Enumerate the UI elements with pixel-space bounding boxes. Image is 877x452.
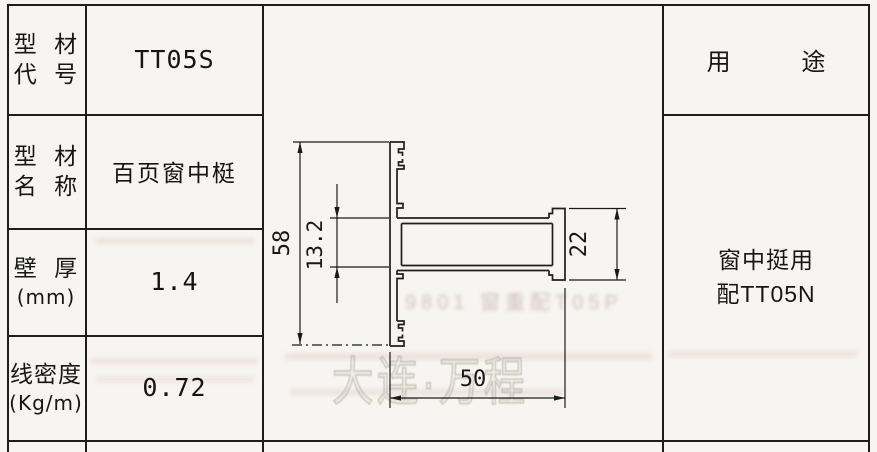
dim-text-58: 58	[270, 230, 295, 257]
label-cell-profile-name: 型 材 名 称	[9, 116, 83, 226]
arrowhead	[554, 395, 565, 400]
label-text: 型 材	[14, 29, 78, 59]
profile-outline	[390, 142, 565, 346]
value-cell-profile-code: TT05S	[87, 6, 262, 112]
label-unit: (Kg/m)	[9, 389, 83, 417]
catalog-page: 大连·万程 9801 窗重配T05P 型 材 代 号 TT05S 型 材 名 称…	[0, 0, 877, 452]
arrowhead	[297, 333, 302, 344]
profile-code: TT05S	[134, 45, 214, 74]
arrowhead	[297, 142, 302, 153]
dim-text-22: 22	[567, 231, 592, 258]
dim-text-13-2: 13.2	[303, 220, 327, 271]
dimension-13-2	[330, 184, 389, 303]
usage-header-text: 用 途	[707, 42, 826, 77]
usage-content-cell: 窗中挺用 配TT05N	[664, 116, 868, 438]
arrowhead	[390, 395, 401, 400]
value-cell-profile-name: 百页窗中梃	[87, 116, 262, 226]
label-text: 名 称	[14, 171, 78, 201]
usage-header-cell: 用 途	[664, 6, 868, 112]
arrowhead	[334, 207, 339, 218]
arrowhead	[614, 269, 619, 280]
label-text: 壁 厚	[14, 253, 78, 283]
arrowhead	[614, 209, 619, 220]
usage-line-1: 窗中挺用	[718, 243, 814, 277]
label-cell-wall-thickness: 壁 厚 (mm)	[9, 230, 83, 333]
label-text: 代 号	[14, 59, 78, 89]
wall-thickness-value: 1.4	[150, 267, 198, 296]
value-cell-linear-density: 0.72	[87, 337, 262, 438]
linear-density-value: 0.72	[142, 373, 206, 402]
value-cell-wall-thickness: 1.4	[87, 230, 262, 333]
label-cell-profile-code: 型 材 代 号	[9, 6, 83, 112]
grid-line-vertical	[868, 4, 870, 452]
label-unit: (mm)	[17, 283, 76, 311]
label-text: 线密度	[10, 359, 82, 389]
dim-text-50: 50	[460, 367, 487, 392]
profile-name: 百页窗中梃	[112, 154, 237, 188]
usage-line-2: 配TT05N	[716, 277, 815, 311]
label-text: 型 材	[14, 141, 78, 171]
arrowhead	[334, 267, 339, 278]
profile-cross-section-drawing: 58 13.2 22 50	[264, 4, 662, 441]
label-cell-linear-density: 线密度 (Kg/m)	[9, 337, 83, 438]
